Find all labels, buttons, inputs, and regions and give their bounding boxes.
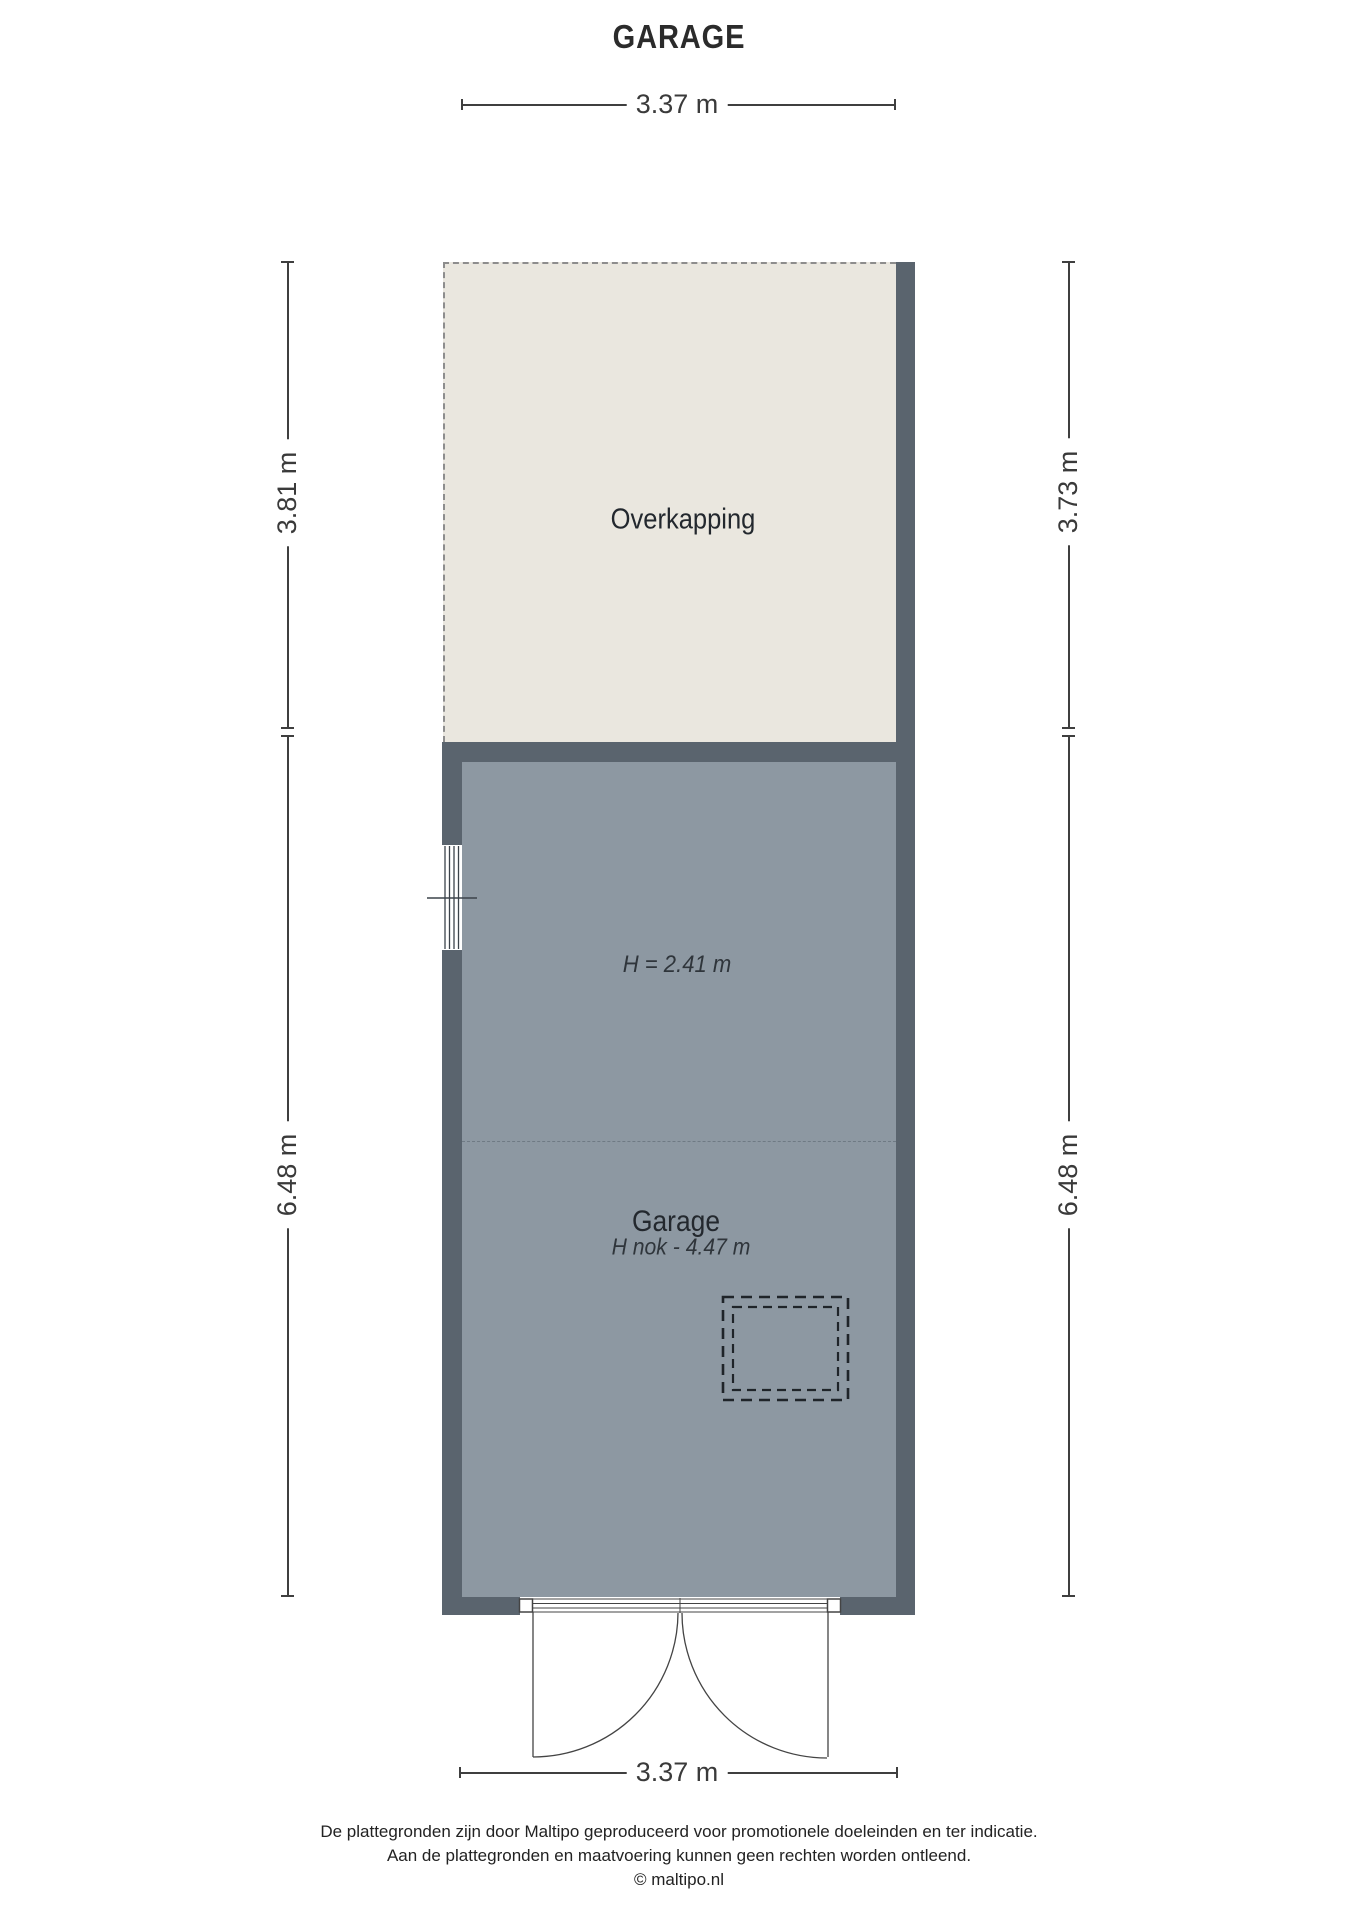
dimension-bottom-label: 3.37 m [627, 1758, 728, 1788]
floor-plan: GARAGE 3.37 m 3.81 m 6.48 m 3.73 m 6.48 … [0, 0, 1358, 1920]
room-overkapping [443, 262, 896, 742]
dimension-bottom-tick-right [896, 1767, 898, 1778]
room-garage [462, 762, 896, 1597]
garage-ceiling-height-label: H = 2.41 m [623, 951, 732, 979]
page-title: GARAGE [81, 18, 1276, 56]
dimension-right-upper-tick-top [1062, 261, 1075, 263]
dimension-right-upper-tick-bottom [1062, 727, 1075, 729]
footer-line-1: De plattegronden zijn door Maltipo gepro… [0, 1820, 1358, 1844]
dimension-top-tick-right [894, 99, 896, 110]
door-leaf-left [533, 1612, 678, 1757]
overkapping-label: Overkapping [611, 504, 756, 537]
window-opening [441, 845, 462, 950]
dimension-right-upper-label: 3.73 m [1054, 439, 1084, 546]
door-opening [520, 1597, 840, 1615]
door-symbol [520, 1598, 841, 1758]
garage-ridge-height-label: H nok - 4.47 m [612, 1234, 751, 1261]
dimension-left-upper-label: 3.81 m [273, 440, 303, 547]
wall-right-upper [896, 262, 915, 742]
dimension-left-lower-tick-bottom [281, 1595, 294, 1597]
dimension-left-lower-label: 6.48 m [273, 1122, 303, 1229]
dimension-right-lower-tick-top [1062, 735, 1075, 737]
garage-zone-divider-dashed [462, 1141, 896, 1142]
dimension-top-tick-left [461, 99, 463, 110]
footer-line-3: © maltipo.nl [0, 1868, 1358, 1892]
dimension-left-lower-tick-top [281, 735, 294, 737]
dimension-top-label: 3.37 m [627, 90, 728, 120]
dimension-right-lower-tick-bottom [1062, 1595, 1075, 1597]
dimension-bottom-tick-left [459, 1767, 461, 1778]
dimension-right-lower-label: 6.48 m [1054, 1122, 1084, 1229]
footer-line-2: Aan de plattegronden en maatvoering kunn… [0, 1844, 1358, 1868]
door-leaf-right [682, 1612, 828, 1758]
dimension-left-upper-tick-bottom [281, 727, 294, 729]
dimension-left-upper-tick-top [281, 261, 294, 263]
footer-disclaimer: De plattegronden zijn door Maltipo gepro… [0, 1820, 1358, 1892]
